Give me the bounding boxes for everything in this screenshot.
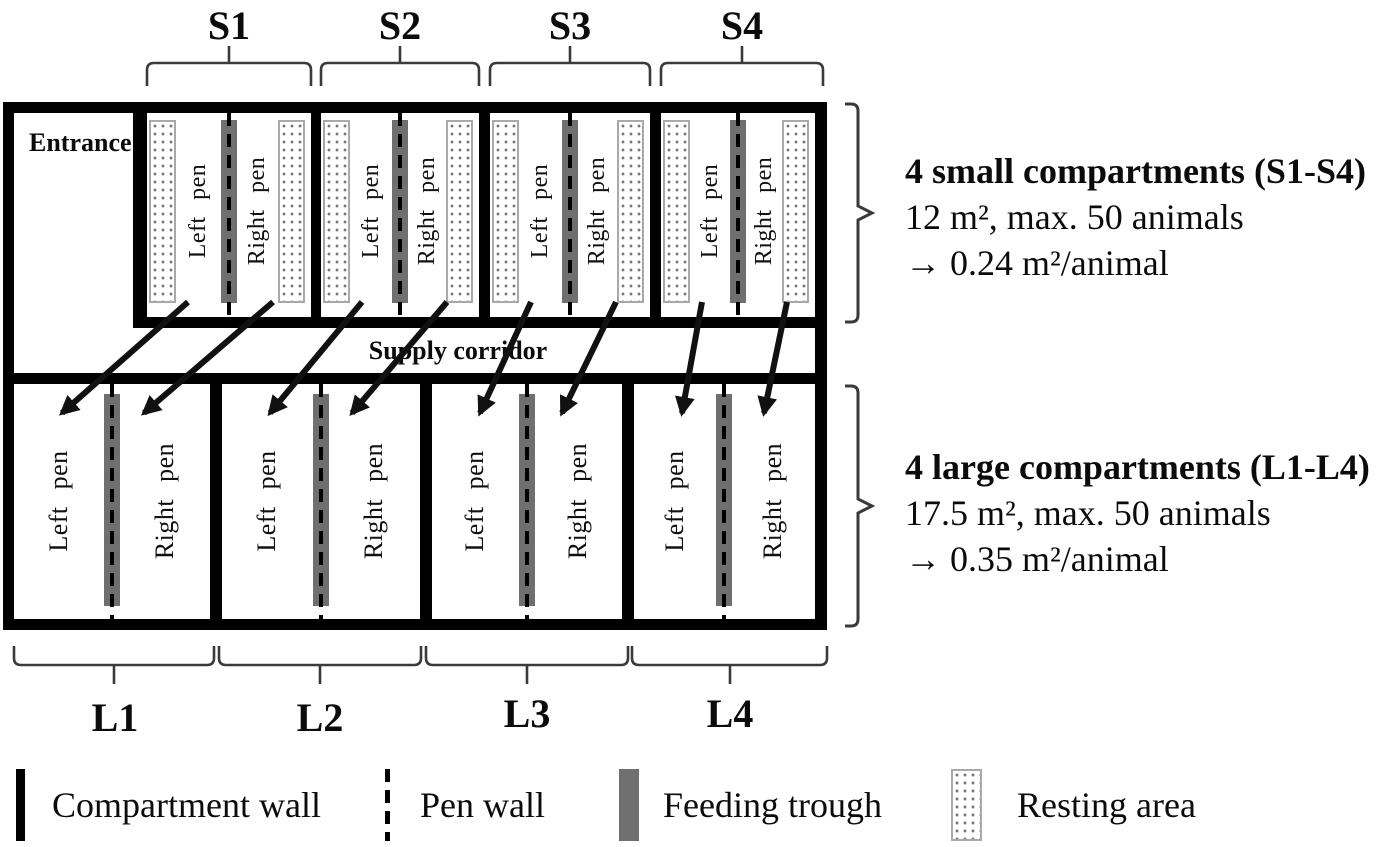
supply-corridor-label: Supply corridor [100,336,816,366]
small-compartments-note: 4 small compartments (S1-S4) 12 m², max.… [905,148,1366,286]
pen-wall [722,384,726,619]
pen-wall [227,113,231,317]
legend-pen-wall-swatch [385,769,390,841]
legend-resting-area-label: Resting area [1017,784,1196,826]
l2-right-pen-label: Right pen [360,431,388,571]
legend-feeding-trough-swatch [619,769,639,841]
brace-l4 [632,646,827,684]
label-s3: S3 [540,2,600,49]
s3-left-pen-label: Left pen [527,156,553,266]
resting-area [492,120,519,303]
small-note-density: → 0.24 m²/animal [905,240,1366,286]
pen-wall [568,113,572,317]
wall-s2-s3 [479,102,490,328]
s1-right-pen-label: Right pen [244,156,270,266]
l3-right-pen-label: Right pen [564,431,592,571]
pen-wall [319,384,323,619]
large-section-top-wall [3,373,827,384]
brace-l2 [219,646,421,684]
legend-compartment-wall-label: Compartment wall [52,784,321,826]
brace-l3 [426,646,628,684]
resting-area [278,120,305,303]
label-s4: S4 [712,2,772,49]
s2-right-pen-label: Right pen [414,156,440,266]
s4-left-pen-label: Left pen [697,156,723,266]
brace-s4 [661,46,823,86]
brace-s2 [321,46,479,86]
large-note-detail: 17.5 m², max. 50 animals [905,490,1370,536]
pen-wall [736,113,740,317]
brace-s3 [490,46,650,86]
s4-right-pen-label: Right pen [751,156,777,266]
small-note-detail: 12 m², max. 50 animals [905,194,1366,240]
label-l2: L2 [280,694,360,741]
label-l3: L3 [487,690,567,737]
pen-wall [525,384,529,619]
large-note-title: 4 large compartments (L1-L4) [905,444,1370,490]
resting-area [446,120,473,303]
wall-s1-s2 [311,102,321,328]
s3-right-pen-label: Right pen [584,156,610,266]
outer-left-wall [3,102,14,630]
outer-right-wall [815,102,827,630]
brace-s1 [147,46,311,86]
label-l1: L1 [75,694,155,741]
l4-right-pen-label: Right pen [759,431,787,571]
large-note-density: → 0.35 m²/animal [905,536,1370,582]
resting-area [323,120,350,303]
l2-left-pen-label: Left pen [253,431,281,571]
legend-compartment-wall-swatch [16,769,25,841]
resting-area [782,120,809,303]
outer-top-wall [3,102,827,113]
wall-l1-l2 [210,373,222,630]
legend-pen-wall-label: Pen wall [420,784,545,826]
brace-large-section [845,386,872,626]
label-s2: S2 [370,2,430,49]
entrance-label: Entrance [29,128,132,158]
l1-right-pen-label: Right pen [151,431,179,571]
legend-resting-area-swatch [951,769,982,841]
l4-left-pen-label: Left pen [661,431,689,571]
wall-l2-l3 [420,373,432,630]
large-compartments-note: 4 large compartments (L1-L4) 17.5 m², ma… [905,444,1370,582]
legend-feeding-trough-label: Feeding trough [663,784,882,826]
wall-s3-s4 [650,102,661,328]
pen-wall [398,113,402,317]
resting-area [663,120,690,303]
brace-small-section [845,104,872,322]
l1-left-pen-label: Left pen [45,431,73,571]
l3-left-pen-label: Left pen [461,431,489,571]
s2-left-pen-label: Left pen [358,156,384,266]
pen-wall [110,384,114,619]
wall-l3-l4 [622,373,634,630]
barn-layout-figure: S1 S2 S3 S4 Entrance Left pen Right pen … [0,0,1400,847]
resting-area [149,120,176,303]
s1-left-pen-label: Left pen [185,156,211,266]
brace-l1 [14,646,214,684]
label-s1: S1 [199,2,259,49]
entrance-compartment-wall [133,102,147,328]
large-section-bottom-wall [3,619,827,630]
small-note-title: 4 small compartments (S1-S4) [905,148,1366,194]
label-l4: L4 [690,690,770,737]
resting-area [617,120,644,303]
